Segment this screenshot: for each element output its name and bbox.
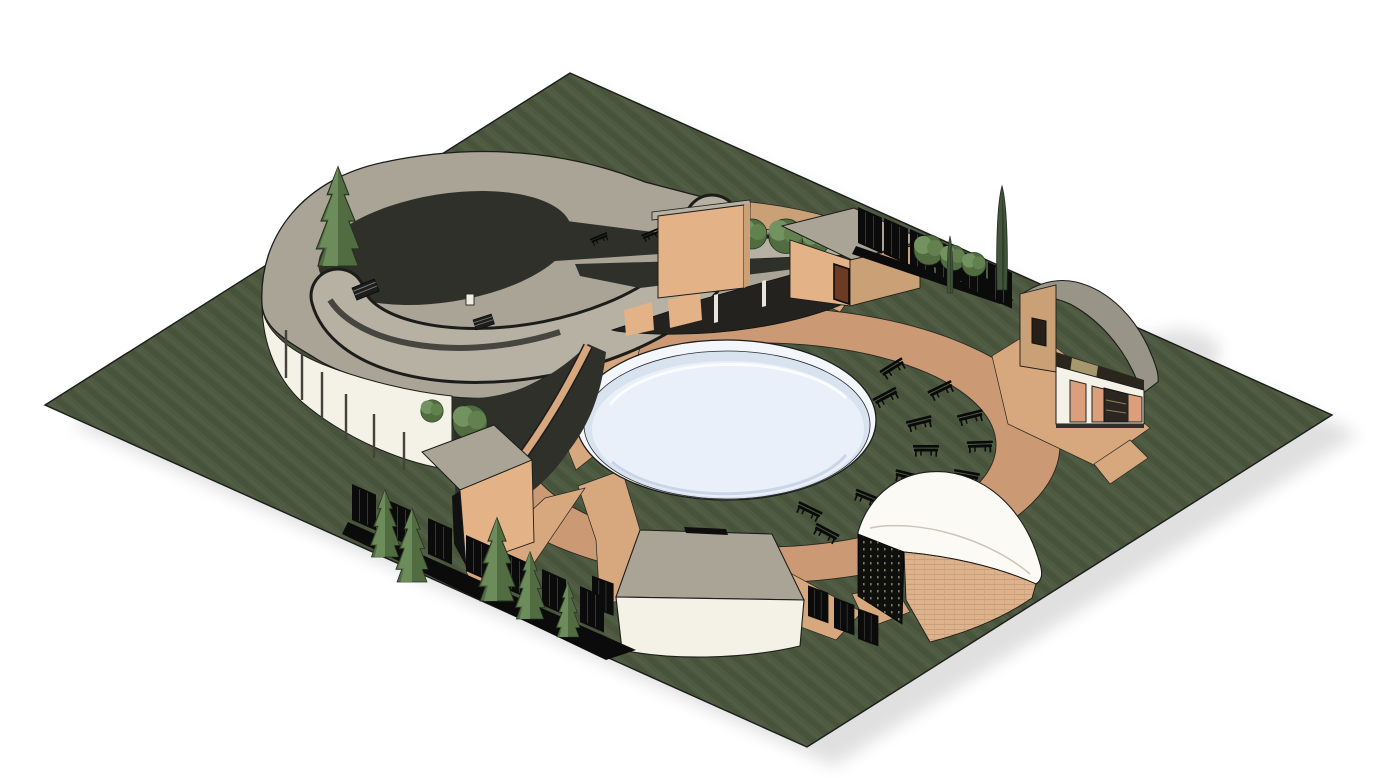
boundary-tree <box>914 235 944 265</box>
roof-chimney <box>466 294 474 305</box>
model-viewport <box>0 0 1378 778</box>
facade-post <box>762 280 766 307</box>
side-window <box>1032 318 1046 346</box>
facade-post <box>714 294 718 323</box>
screen-wall-face <box>658 205 744 298</box>
window-shutter <box>1092 386 1104 422</box>
window-shutter <box>1128 394 1142 422</box>
cube-door <box>834 264 849 304</box>
screen-wall-edge <box>744 202 750 288</box>
front-window <box>1104 388 1128 422</box>
site-model-canvas <box>0 0 1378 778</box>
curved-white-wall <box>616 597 804 657</box>
facade-base <box>1056 424 1144 428</box>
courtyard-bush <box>421 400 444 423</box>
boundary-tree <box>962 252 986 276</box>
reflecting-pool <box>576 340 876 500</box>
front-door <box>1070 380 1086 422</box>
